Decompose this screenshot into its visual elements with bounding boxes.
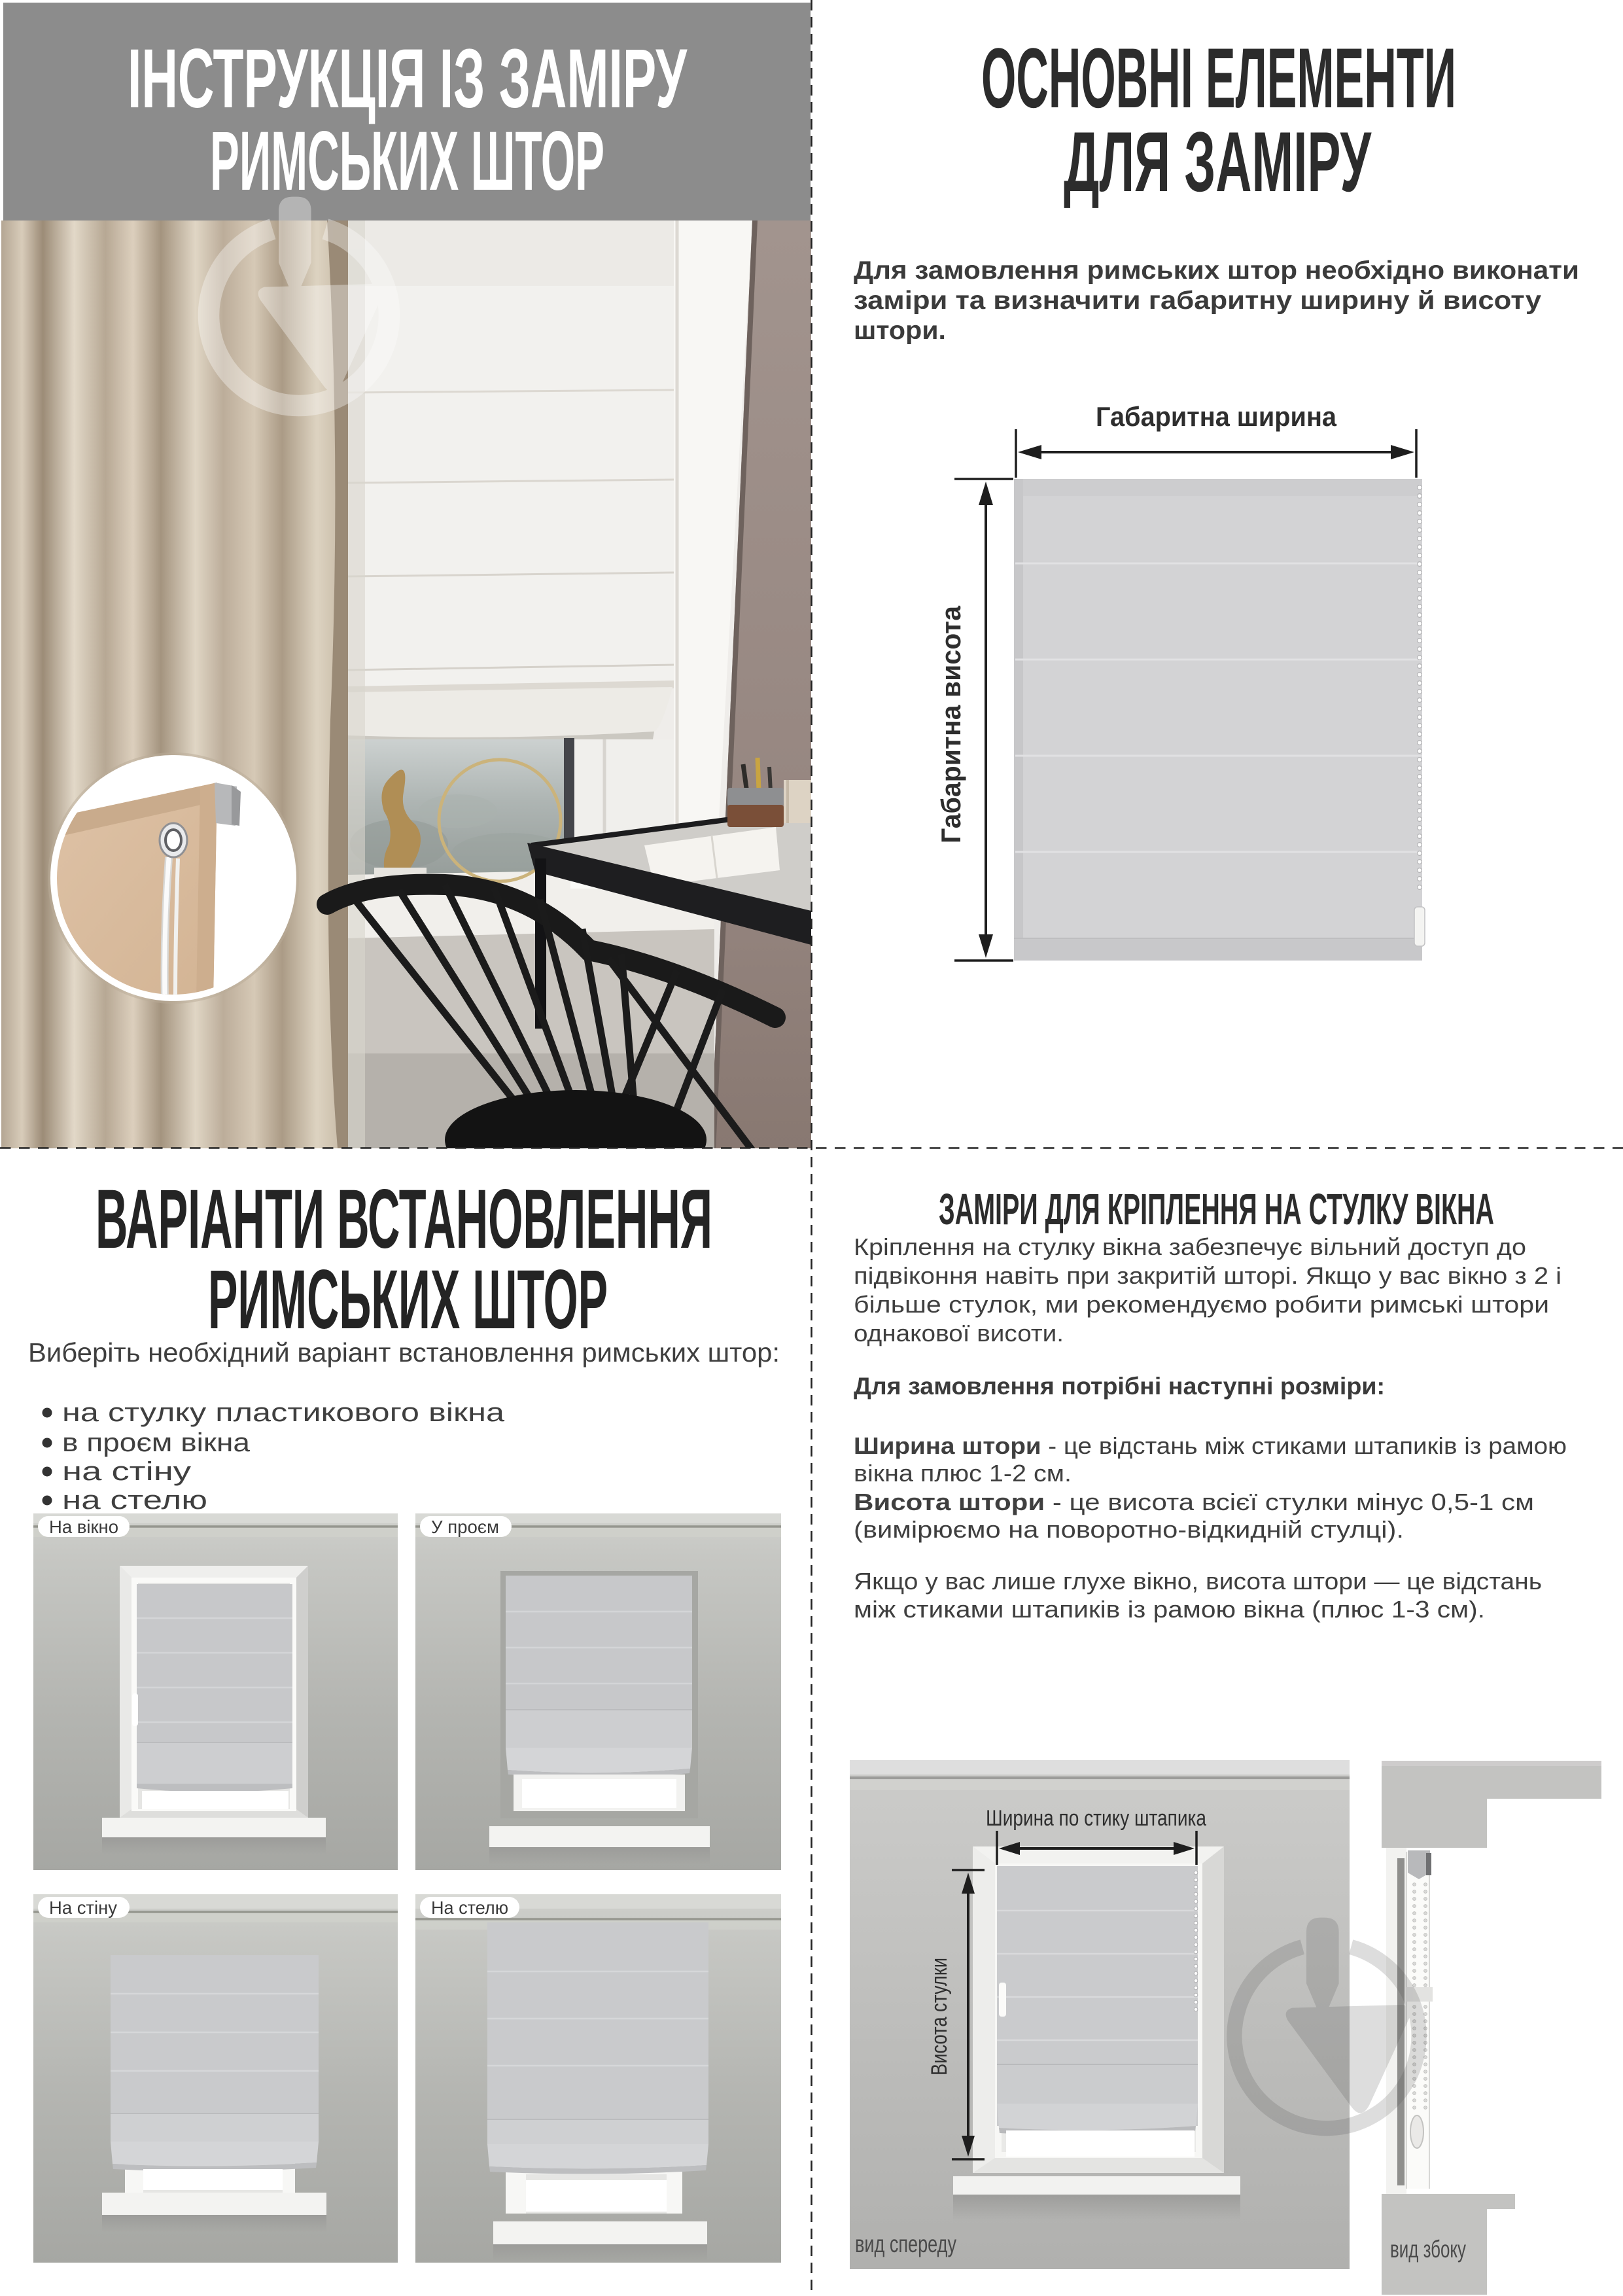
svg-text:Висота стулки: Висота стулки — [927, 1958, 952, 2075]
svg-text:ОСНОВНІ ЕЛЕМЕНТИ: ОСНОВНІ ЕЛЕМЕНТИ — [981, 30, 1456, 126]
svg-text:РИМСЬКИХ ШТОР: РИМСЬКИХ ШТОР — [210, 115, 604, 208]
svg-text:на стелю: на стелю — [62, 1486, 207, 1515]
svg-text:заміри та визначити габаритну: заміри та визначити габаритну ширину й в… — [854, 287, 1541, 315]
svg-text:Габаритна ширина: Габаритна ширина — [1096, 401, 1337, 432]
svg-text:ЗАМІРИ ДЛЯ КРІПЛЕННЯ НА СТУЛКУ: ЗАМІРИ ДЛЯ КРІПЛЕННЯ НА СТУЛКУ ВІКНА — [939, 1185, 1494, 1234]
svg-text:Габаритна висота: Габаритна висота — [935, 605, 966, 843]
svg-text:На стіну: На стіну — [49, 1898, 117, 1918]
svg-text:Ширина по стику штапика: Ширина по стику штапика — [986, 1806, 1206, 1831]
svg-text:штори.: штори. — [854, 317, 946, 345]
svg-text:(вимірюємо на поворотно-відкид: (вимірюємо на поворотно-відкидній стулці… — [854, 1516, 1404, 1543]
svg-text:ВАРІАНТИ ВСТАНОВЛЕННЯ: ВАРІАНТИ ВСТАНОВЛЕННЯ — [96, 1173, 712, 1266]
svg-text:Ширина штори - це відстань між: Ширина штори - це відстань між стиками ш… — [854, 1432, 1567, 1459]
svg-text:вікна плюс 1-2 см.: вікна плюс 1-2 см. — [854, 1460, 1072, 1487]
svg-text:Для замовлення римських штор н: Для замовлення римських штор необхідно в… — [854, 256, 1579, 285]
svg-text:вид спереду: вид спереду — [855, 2231, 956, 2257]
svg-text:ІНСТРУКЦІЯ ІЗ ЗАМІРУ: ІНСТРУКЦІЯ ІЗ ЗАМІРУ — [128, 32, 688, 126]
svg-text:РИМСЬКИХ ШТОР: РИМСЬКИХ ШТОР — [208, 1253, 608, 1347]
svg-text:вид збоку: вид збоку — [1390, 2236, 1466, 2263]
svg-text:між стиками штапиків із рамою: між стиками штапиків із рамою вікна (плю… — [854, 1596, 1485, 1623]
svg-text:в проєм вікна: в проєм вікна — [62, 1428, 251, 1457]
svg-text:На вікно: На вікно — [49, 1517, 118, 1537]
svg-text:більше стулок, ми рекомендуємо: більше стулок, ми рекомендуємо робити ри… — [854, 1291, 1549, 1318]
svg-text:На стелю: На стелю — [431, 1898, 508, 1918]
svg-text:Якщо у вас лише глухе вікно, в: Якщо у вас лише глухе вікно, висота штор… — [854, 1568, 1542, 1595]
svg-text:однакової висоти.: однакової висоти. — [854, 1320, 1064, 1347]
svg-text:ДЛЯ ЗАМІРУ: ДЛЯ ЗАМІРУ — [1064, 114, 1372, 209]
svg-text:Кріплення на стулку вікна забе: Кріплення на стулку вікна забезпечує віл… — [854, 1233, 1526, 1260]
svg-text:на стіну: на стіну — [62, 1457, 191, 1486]
svg-text:на стулку пластикового вікна: на стулку пластикового вікна — [62, 1398, 505, 1427]
svg-text:У проєм: У проєм — [431, 1517, 499, 1537]
svg-text:Висота штори - це висота всієї: Висота штори - це висота всієї стулки мі… — [854, 1489, 1534, 1515]
svg-text:Для замовлення потрібні наступ: Для замовлення потрібні наступні розміри… — [854, 1373, 1385, 1400]
svg-text:підвіконня навіть при закритій: підвіконня навіть при закритій шторі. Як… — [854, 1262, 1562, 1289]
svg-text:Виберіть необхідний варіант вс: Виберіть необхідний варіант встановлення… — [28, 1337, 780, 1368]
